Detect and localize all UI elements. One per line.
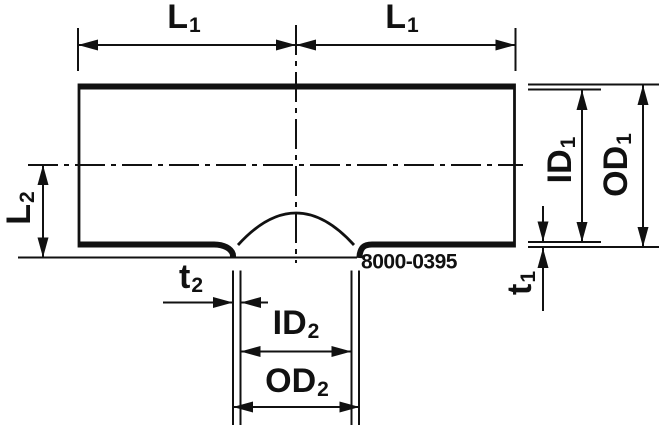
arrowhead [340,402,360,413]
dimension-t1 [538,206,549,311]
label-l2: L2 [2,191,36,224]
label-od1: OD1 [599,133,633,197]
arrowhead [638,85,649,105]
label-t1-base: t [501,284,539,295]
label-t2-sub: 2 [191,274,203,297]
label-l1-left: L1 [167,0,200,34]
drawing-linework [0,0,659,425]
run-bottom-wall-left [78,245,233,259]
arrowhead [296,40,316,51]
arrowhead [538,222,549,242]
label-id1: ID1 [543,137,577,184]
centerlines [28,25,523,263]
arrowhead [538,248,549,268]
label-id1-sub: 1 [557,137,580,149]
dimension-id2 [241,346,352,357]
arrowhead [213,297,233,308]
part-number: 8000-0395 [361,252,457,273]
arrowhead [638,227,649,247]
label-od2: OD2 [265,364,329,398]
label-l1-right-sub: 1 [407,14,419,37]
dimension-t2 [163,297,268,308]
label-od1-base: OD [597,146,635,197]
tee-fitting-dimension-drawing: L1 L1 L2 ID1 OD1 t1 t2 ID2 OD2 8000-0395 [0,0,659,425]
arrowhead [332,346,352,357]
label-id2-sub: 2 [308,320,320,343]
dimension-od1 [638,85,649,247]
label-t2: t2 [179,260,203,294]
label-id1-base: ID [541,149,579,183]
arrowhead [38,238,49,258]
label-od2-base: OD [265,362,316,400]
label-t1-sub: 1 [517,271,540,283]
run-body-outline [18,84,516,259]
arrowhead [241,297,261,308]
label-l2-sub: 2 [16,191,39,203]
label-t1: t1 [503,271,537,295]
label-od1-sub: 1 [613,133,636,145]
label-l1-left-base: L [167,0,188,36]
label-od2-sub: 2 [317,378,329,401]
arrowhead [276,40,296,51]
label-l1-right: L1 [385,0,418,34]
label-id2-base: ID [273,304,307,342]
label-l1-left-sub: 1 [189,14,201,37]
arrowhead [577,222,588,242]
arrowhead [233,402,253,413]
arrowhead [78,40,98,51]
label-l2-base: L [0,204,38,225]
label-t2-base: t [179,258,190,296]
arrowhead [496,40,516,51]
arrowhead [38,165,49,185]
label-id2: ID2 [273,306,320,340]
arrowhead [241,346,261,357]
dimension-od2 [233,402,360,413]
label-l1-right-base: L [385,0,406,36]
arrowhead [577,90,588,110]
